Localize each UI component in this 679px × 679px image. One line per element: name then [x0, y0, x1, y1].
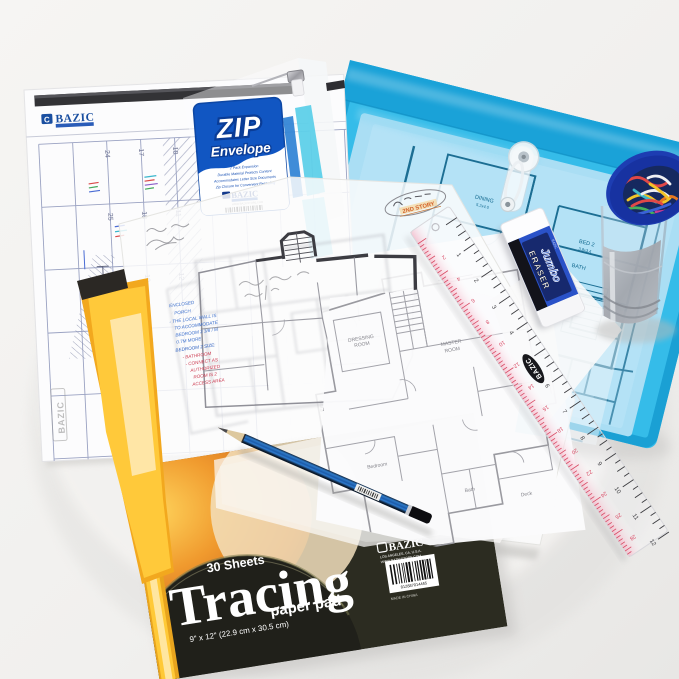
svg-text:17: 17: [137, 148, 144, 156]
svg-text:BAZIC: BAZIC: [55, 401, 67, 434]
svg-text:10: 10: [171, 147, 178, 155]
svg-text:25: 25: [106, 213, 113, 221]
svg-text:24: 24: [103, 150, 110, 158]
svg-text:ZIP: ZIP: [214, 111, 262, 145]
svg-text:C: C: [44, 115, 50, 124]
